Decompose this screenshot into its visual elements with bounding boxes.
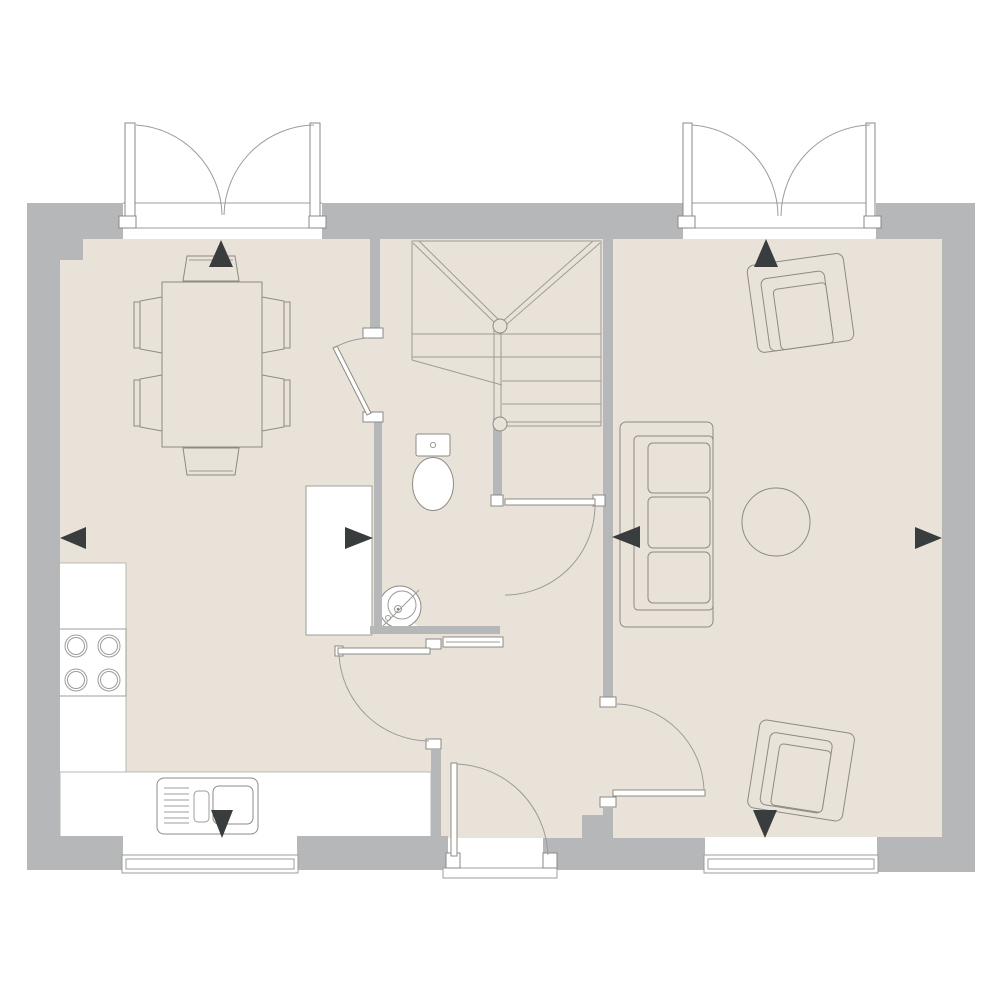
door-jamb-living-bottom — [600, 797, 616, 807]
living-door-leaf — [613, 790, 705, 796]
dining-table — [162, 282, 262, 447]
dining-chair-right-2-back — [284, 380, 290, 426]
toilet-bowl — [413, 458, 454, 511]
wall-bottom-living — [543, 838, 705, 870]
dining-chair-right-2 — [262, 375, 284, 431]
front-door-leaf — [451, 763, 457, 856]
armchair-top-seat — [773, 282, 834, 350]
door-jamb-stairs-left — [491, 495, 503, 506]
french-door-right-base — [864, 216, 881, 228]
sofa-cushion — [648, 497, 710, 548]
living-window-frame — [704, 855, 878, 873]
wall-hall-pier — [582, 815, 603, 838]
wall-bottom-kitchen — [27, 836, 123, 870]
wall-right — [942, 203, 975, 872]
french-door-right-panel — [866, 123, 875, 218]
dining-chair-left-1 — [140, 297, 162, 353]
basin-tap-dot — [397, 608, 400, 611]
french-door-left-panel — [125, 123, 135, 218]
french-door-right-opening — [683, 202, 875, 239]
wall-wc-bottom — [370, 626, 500, 634]
stairs-hall-door-leaf — [505, 499, 595, 505]
sofa-cushion — [648, 552, 710, 603]
kitchen-window-frame — [122, 855, 298, 873]
french-door-left-panel — [310, 123, 320, 218]
wall-top-middle — [322, 203, 683, 239]
french-door-left-swing — [136, 125, 222, 215]
round-side-table — [742, 488, 810, 556]
french-door-left-opening — [123, 202, 322, 239]
dining-chair-right-1 — [262, 297, 284, 353]
wall-bottom-right-corner — [877, 837, 975, 872]
wall-hall-kitchen — [431, 750, 441, 838]
stairs-newel-top — [493, 319, 507, 333]
french-door-left-base — [119, 216, 136, 228]
kitchen-door-leaf — [338, 648, 430, 654]
basin-bowl — [379, 586, 421, 628]
door-jamb-living-top — [600, 697, 616, 707]
floor-plan-canvas — [0, 0, 1001, 1000]
dining-chair-left-2 — [140, 375, 162, 431]
door-jamb-wc-top — [363, 328, 383, 338]
door-jamb-front-right — [543, 853, 557, 868]
wall-left — [27, 205, 60, 870]
wall-top-left — [27, 203, 123, 239]
wall-wc-left — [374, 418, 382, 632]
sofa-cushion — [648, 443, 710, 493]
wall-pier-top-left — [60, 239, 83, 260]
wall-bottom-hall — [297, 836, 448, 870]
hob — [59, 629, 126, 696]
toilet-cistern — [416, 434, 450, 456]
armchair-bottom-seat — [770, 743, 831, 812]
stairs-newel-bottom — [493, 417, 507, 431]
dining-chair-left-1-back — [134, 302, 140, 348]
french-door-right-panel — [683, 123, 692, 218]
dining-chair-left-2-back — [134, 380, 140, 426]
front-door-threshold — [443, 868, 557, 878]
floor-plan-page — [0, 0, 1001, 1000]
front-door-opening — [448, 838, 543, 870]
wall-living-stub — [603, 808, 613, 838]
dining-chair-right-1-back — [284, 302, 290, 348]
french-door-left-swing — [224, 125, 314, 215]
wall-stub-dining-stairs — [370, 238, 380, 331]
french-door-left-base — [309, 216, 326, 228]
french-door-right-base — [678, 216, 695, 228]
kitchen-tall-unit — [306, 486, 372, 635]
wall-hall-living — [603, 238, 613, 698]
